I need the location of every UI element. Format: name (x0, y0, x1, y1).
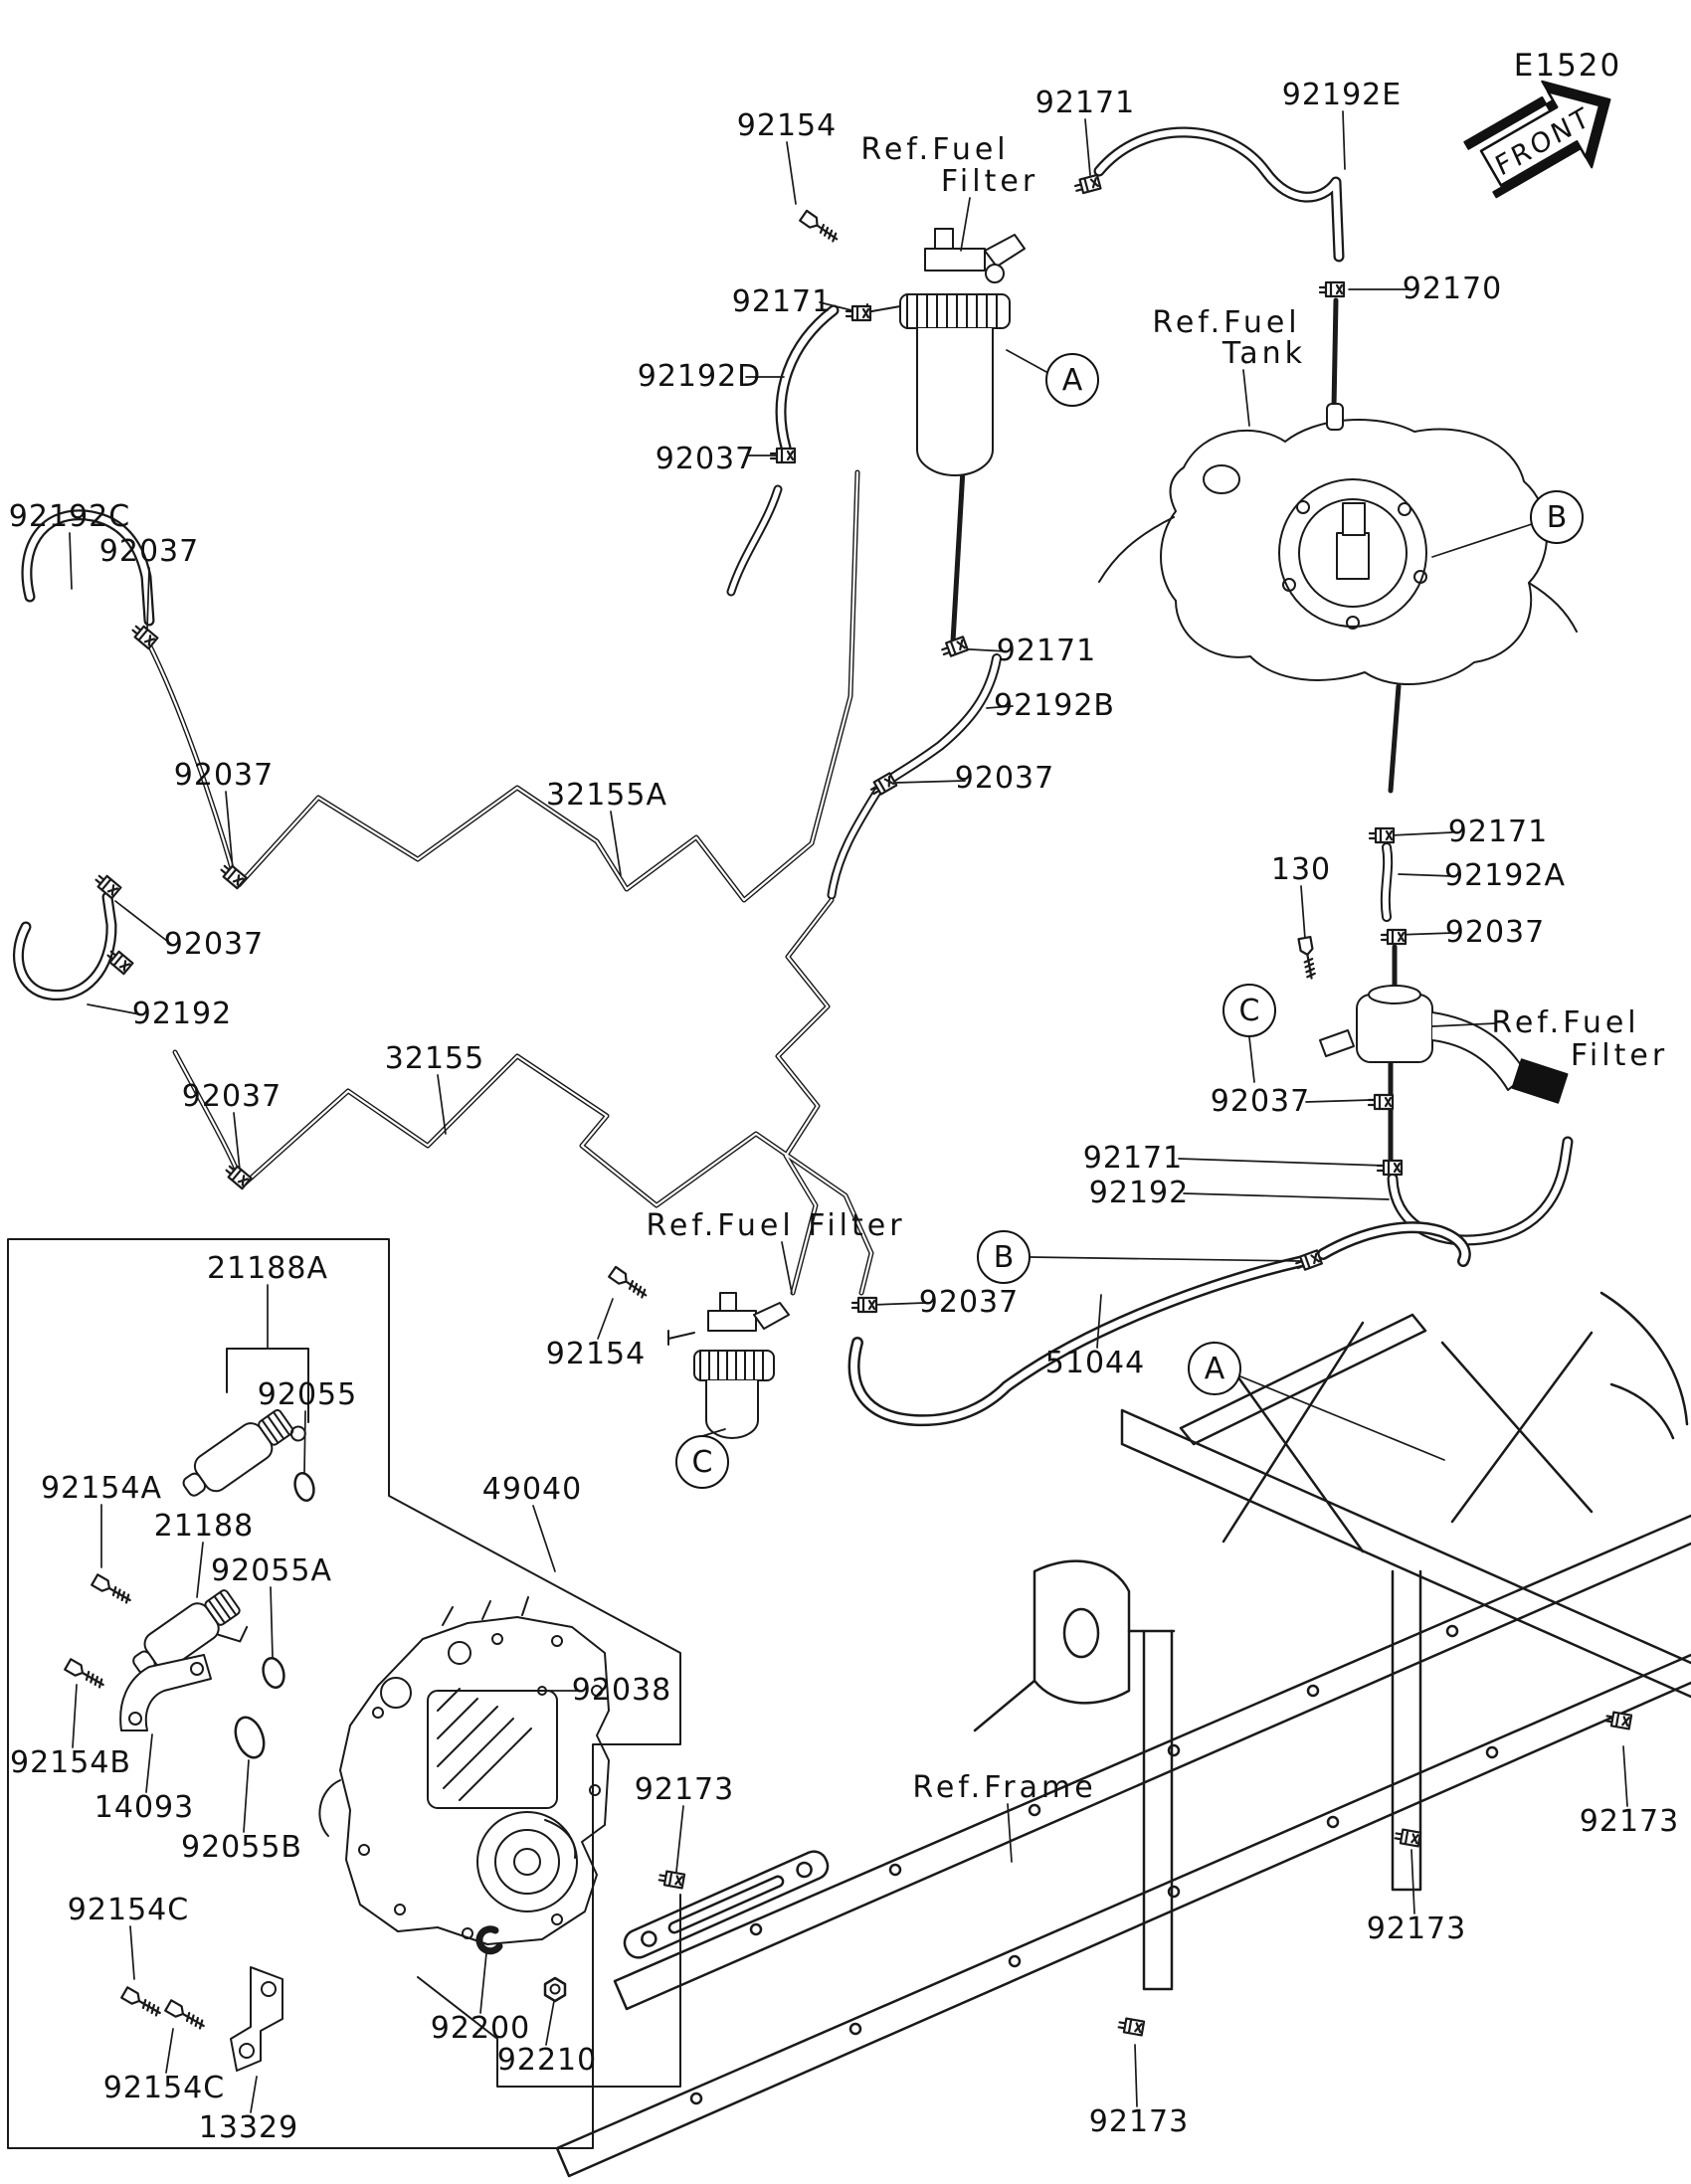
injection-pump (319, 1597, 609, 1944)
hose-clamp-icon (1382, 930, 1406, 944)
bolt-icon (609, 1267, 649, 1300)
bolt-icon (92, 1574, 133, 1605)
part-label-92171: 92171 (1448, 818, 1548, 847)
part-label-21188a: 21188A (207, 1254, 328, 1284)
part-label-92154c: 92154C (68, 1896, 189, 1925)
part-label-92192: 92192 (1089, 1179, 1189, 1208)
part-label-ref-fuel: Ref.Fuel (860, 135, 1009, 165)
part-label-92154: 92154 (737, 111, 837, 141)
bolt-icon (1299, 937, 1318, 979)
part-label-ref-fuel: Ref.Fuel (1491, 1008, 1639, 1038)
part-label-92055a: 92055A (211, 1556, 332, 1586)
o-ring-icon (231, 1714, 270, 1761)
part-label-92037: 92037 (656, 445, 755, 474)
hose-clamp-icon (130, 623, 157, 648)
part-label-21188: 21188 (154, 1512, 254, 1542)
part-label-92170: 92170 (1403, 274, 1502, 304)
part-label-92037: 92037 (955, 764, 1054, 794)
part-label-92171: 92171 (1035, 89, 1135, 118)
part-label-92200: 92200 (431, 2014, 530, 2044)
fuel-filter-top (866, 229, 1025, 475)
part-label-92037: 92037 (164, 930, 264, 960)
bolt-icon (65, 1659, 106, 1690)
part-label-92173: 92173 (635, 1775, 734, 1805)
hose-clamp-icon (852, 1298, 876, 1312)
part-label-ref-fuel: Ref.Fuel (1152, 308, 1300, 338)
hose-clamp-icon (846, 306, 870, 320)
part-label-92173: 92173 (1580, 1807, 1679, 1837)
hose-clamp-icon (1118, 2018, 1144, 2036)
hose-clamp-icon (1605, 1712, 1631, 1729)
part-label-92037: 92037 (174, 761, 274, 791)
part-label-92171: 92171 (732, 287, 832, 317)
part-label-tank: Tank (1222, 339, 1306, 369)
part-label-ref-frame: Ref.Frame (912, 1773, 1096, 1803)
solenoid-21188A (175, 1398, 307, 1510)
part-label-92037: 92037 (919, 1288, 1019, 1318)
part-label-filter: Filter (941, 167, 1038, 197)
part-label-92171: 92171 (997, 637, 1096, 666)
page-code: E1520 (1514, 48, 1621, 84)
hose-clamp-icon (658, 1871, 684, 1889)
part-label-92055b: 92055B (181, 1833, 302, 1863)
hose-clamp-icon (869, 773, 897, 797)
part-label-13329: 13329 (199, 2113, 298, 2143)
part-label-92037: 92037 (99, 537, 199, 567)
part-label-92192: 92192 (132, 1000, 232, 1029)
part-label-14093: 14093 (94, 1793, 194, 1823)
bracket-14093 (120, 1655, 211, 1730)
part-label-32155a: 32155A (546, 781, 667, 811)
part-label-92154b: 92154B (10, 1748, 131, 1778)
hose-clamp-icon (1395, 1829, 1420, 1847)
callout-B: B (977, 1230, 1031, 1284)
hose-clamp-icon (941, 637, 968, 657)
part-label-92192d: 92192D (638, 362, 762, 392)
part-label-92192c: 92192C (9, 502, 130, 532)
part-label-92154c: 92154C (103, 2074, 225, 2103)
hose-clamp-icon (1369, 1095, 1393, 1109)
callout-C: C (675, 1435, 729, 1489)
part-label-92154: 92154 (546, 1340, 646, 1369)
part-label-92037: 92037 (1211, 1087, 1310, 1117)
part-label-92154a: 92154A (41, 1474, 162, 1504)
part-label-92192a: 92192A (1444, 861, 1566, 891)
hose-clamp-icon (1370, 828, 1394, 842)
part-label-92038: 92038 (572, 1676, 671, 1706)
o-ring-icon (292, 1471, 317, 1503)
fuel-filter-center (668, 1293, 789, 1438)
o-ring-icon (260, 1656, 286, 1690)
part-label-51044: 51044 (1045, 1349, 1145, 1378)
hose-clamp-icon (1320, 282, 1344, 296)
part-label-92037: 92037 (182, 1082, 282, 1112)
part-label-92055: 92055 (258, 1380, 357, 1410)
callout-A: A (1045, 353, 1099, 407)
part-label-92173: 92173 (1089, 2107, 1189, 2137)
bolt-icon (800, 211, 840, 244)
parts-diagram-page: FRONT (0, 0, 1691, 2184)
fuel-tank (1099, 404, 1577, 684)
part-label-filter: Filter (1571, 1041, 1668, 1071)
hose-clamp-icon (94, 872, 120, 898)
nut-92210 (545, 1978, 565, 2001)
part-label-92173: 92173 (1367, 1914, 1466, 1944)
part-label-92210: 92210 (497, 2046, 597, 2076)
part-label-ref-fuel-filter: Ref.Fuel Filter (646, 1211, 905, 1241)
part-label-49040: 49040 (482, 1475, 582, 1505)
callout-A: A (1188, 1342, 1241, 1395)
callout-C: C (1222, 984, 1276, 1037)
part-label-32155: 32155 (385, 1044, 484, 1074)
part-label-130: 130 (1271, 855, 1331, 885)
part-label-92192e: 92192E (1282, 81, 1402, 110)
bracket-13329 (231, 1967, 282, 2071)
fuel-filter-right (1320, 986, 1567, 1103)
hose-clamp-icon (1378, 1161, 1402, 1175)
bolt-icon (165, 2000, 207, 2031)
callout-B: B (1530, 490, 1584, 544)
hose-clamp-icon (1074, 175, 1101, 195)
part-label-92037: 92037 (1445, 918, 1545, 948)
bolt-icon (121, 1987, 163, 2018)
part-label-92192b: 92192B (994, 691, 1115, 721)
part-label-92171: 92171 (1083, 1144, 1183, 1174)
